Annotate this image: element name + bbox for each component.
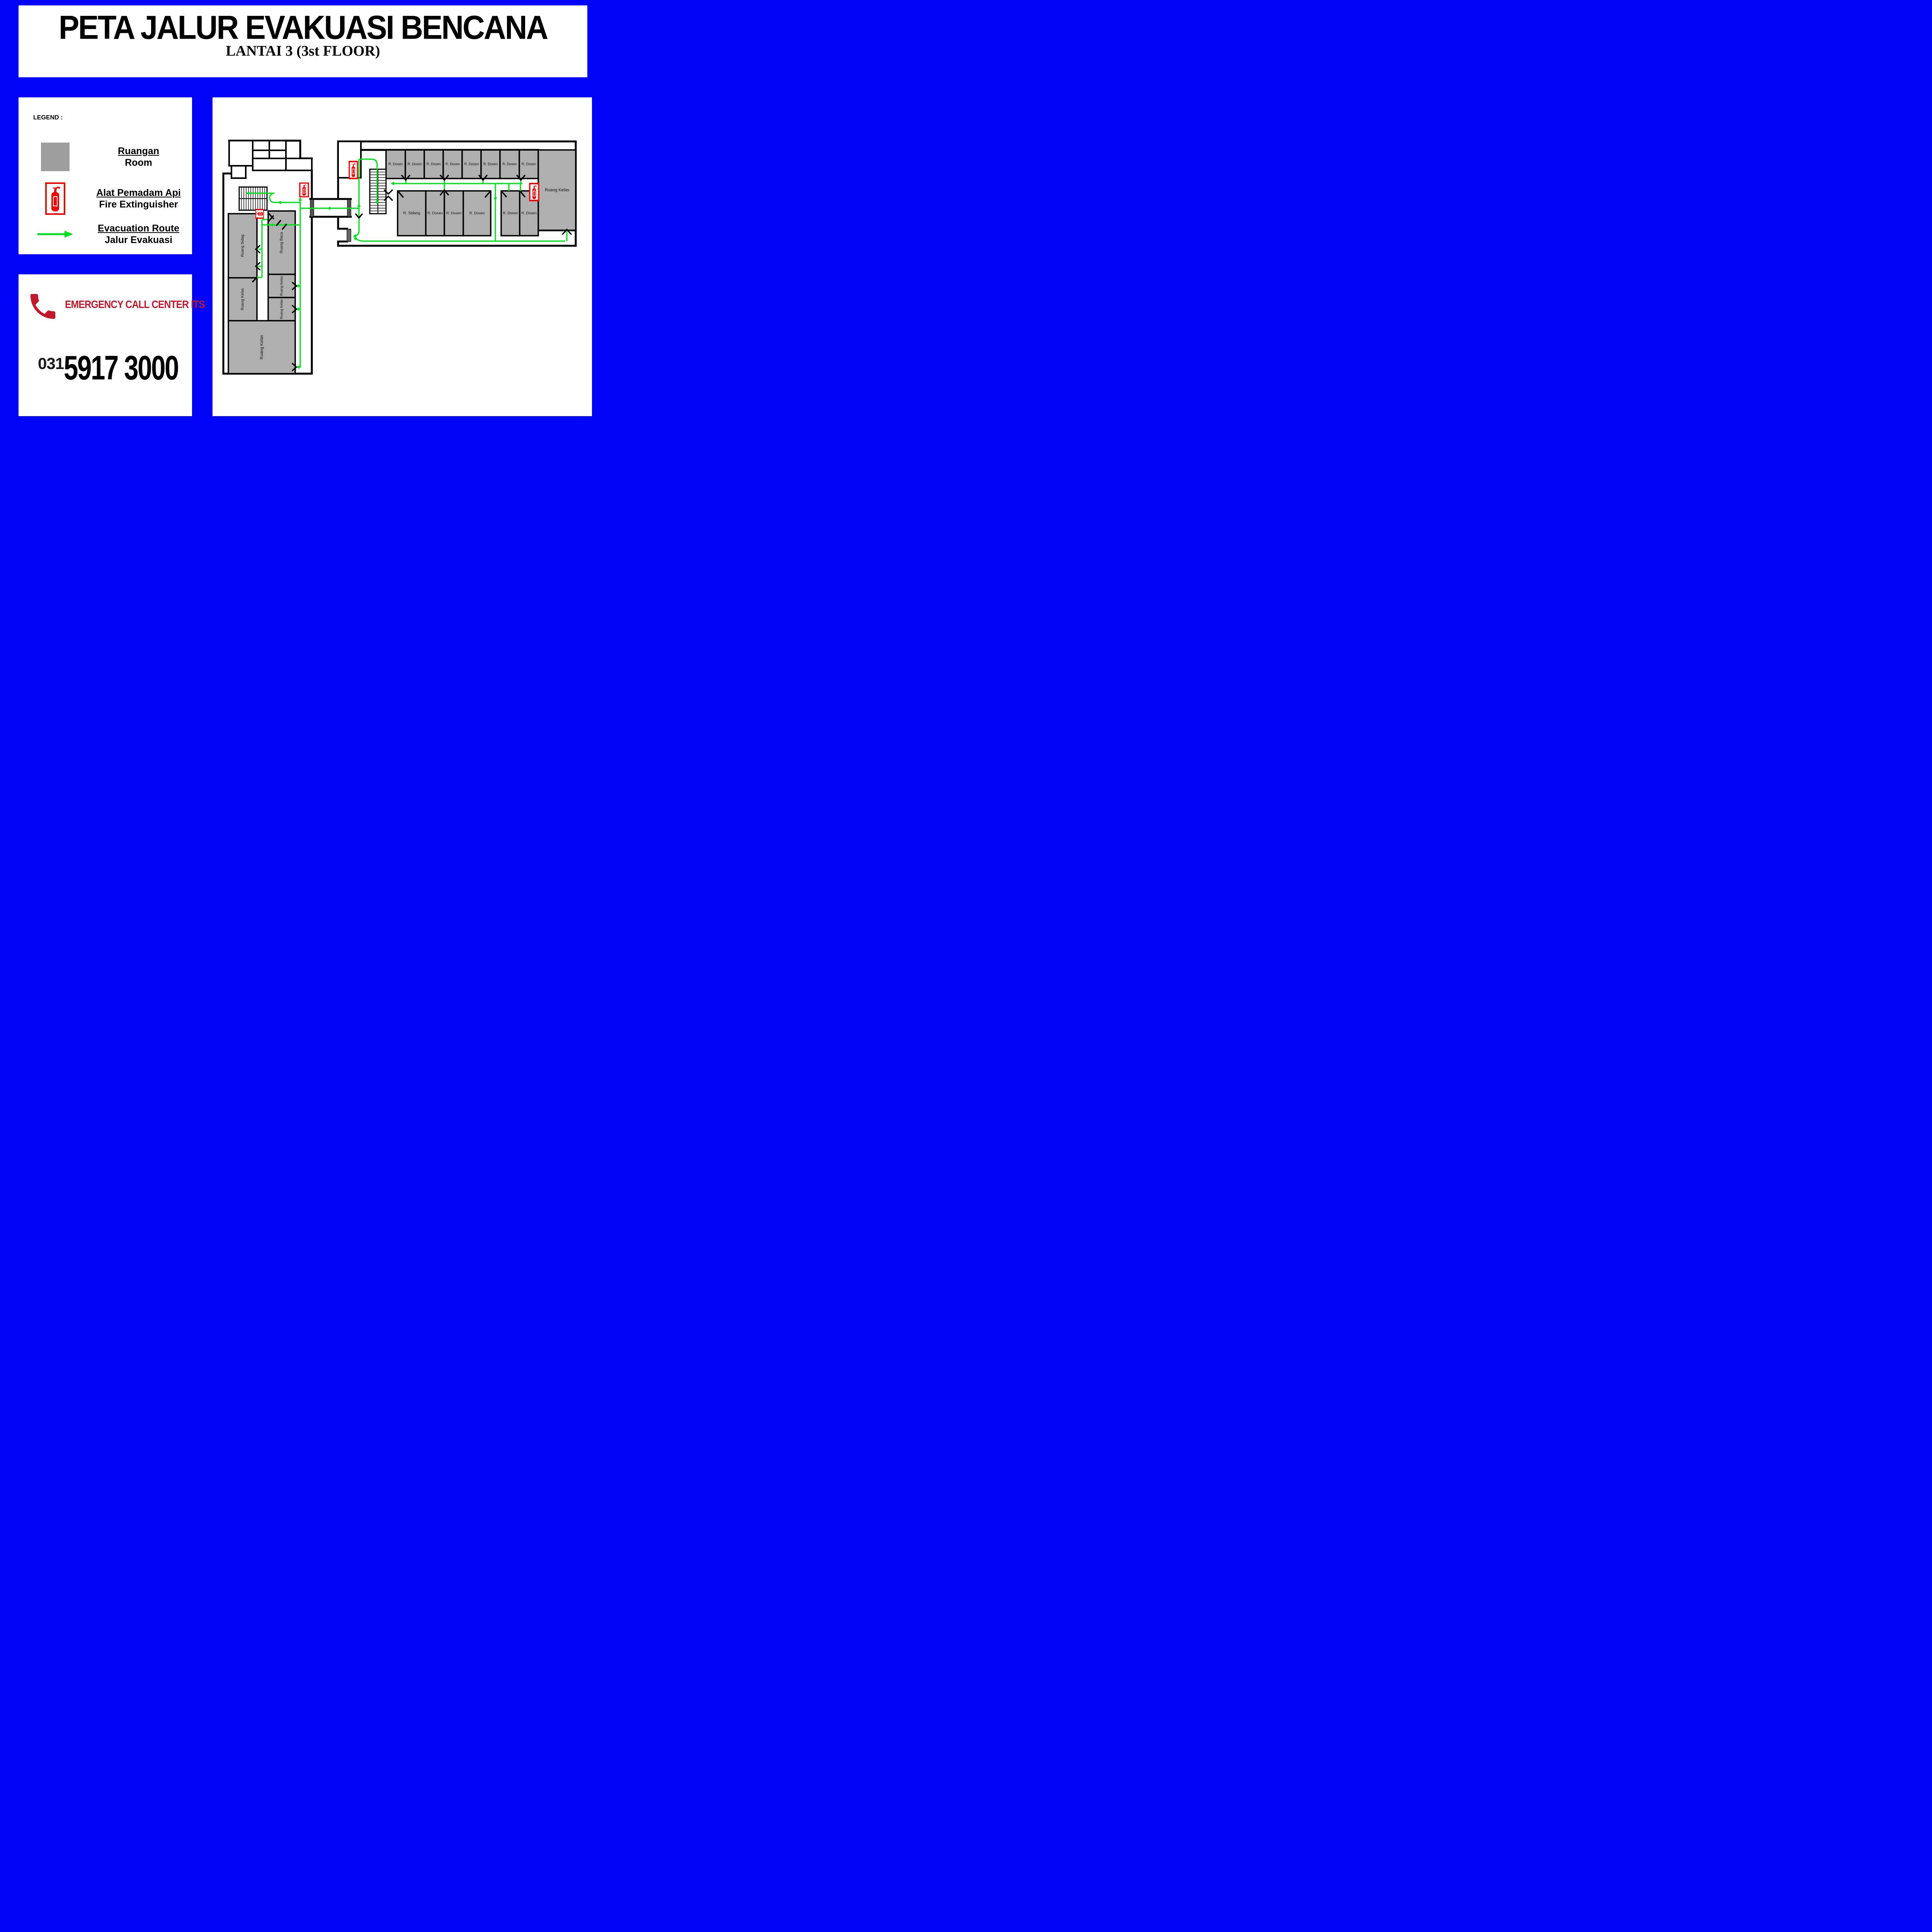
legend-room-label-id: Ruangan	[118, 146, 159, 156]
evacuation-route	[355, 238, 565, 241]
fire-extinguisher-icon	[300, 183, 308, 197]
room-label: R. Dosen	[446, 162, 460, 166]
room-label: R. Dosen	[446, 211, 462, 216]
utility-room	[286, 158, 312, 170]
phone-prefix: 031	[38, 354, 64, 372]
room-label: R. Dosen	[483, 162, 498, 166]
room-label: R. Dosen	[388, 162, 403, 166]
emergency-title: EMERGENCY CALL CENTER ITS	[65, 298, 205, 311]
room-label: R. Dosen	[522, 162, 536, 166]
room-label: Ruang Sidag	[241, 235, 245, 257]
room-label: R. Dosen	[427, 211, 443, 216]
legend-heading: LEGEND :	[33, 114, 63, 121]
room-label: R. Dosen	[469, 211, 485, 216]
fire-extinguisher-icon	[256, 209, 264, 218]
fire-extinguisher-icon	[530, 184, 539, 201]
phone-icon	[26, 290, 60, 323]
utility-room	[269, 150, 286, 158]
legend-route-label-id: Jalur Evakuasi	[105, 235, 172, 245]
evacuation-map-poster: PETA JALUR EVAKUASI BENCANA LANTAI 3 (3s…	[0, 0, 606, 434]
legend-panel: LEGEND : Ruangan Room	[19, 97, 192, 254]
utility-room	[253, 150, 269, 158]
legend-room-label-en: Room	[125, 157, 152, 168]
utility-room	[231, 166, 246, 178]
phone-main: 5917 3000	[64, 348, 178, 388]
room-label: R. Dosen	[427, 162, 441, 166]
room-label: R. Dosen	[408, 162, 422, 166]
fire-extinguisher-icon	[349, 162, 357, 179]
fire-extinguisher-icon	[45, 182, 65, 215]
room-swatch-icon	[41, 143, 70, 171]
room-label: R. Dosen	[521, 211, 537, 216]
evacuation-route-arrow-icon	[37, 230, 74, 238]
utility-room	[269, 141, 286, 150]
room-label: Ruang Kelas	[241, 288, 245, 310]
room-label: Ruang Kelas	[259, 335, 264, 359]
legend-extinguisher-label-en: Fire Extinguisher	[99, 199, 178, 210]
page-title: PETA JALUR EVAKUASI BENCANA	[19, 5, 587, 46]
room-label: R. Sidang	[403, 211, 420, 216]
emergency-panel: EMERGENCY CALL CENTER ITS 0315917 3000	[19, 274, 192, 416]
legend-route-label-en: Evacuation Route	[98, 223, 179, 234]
utility-room	[253, 141, 269, 150]
legend-item-route: Evacuation Route Jalur Evakuasi	[19, 222, 192, 247]
floor-plan-drawing: R. DosenR. DosenR. DosenR. DosenR. Dosen…	[213, 97, 592, 416]
room-label: Ruang Baca	[280, 232, 284, 253]
legend-item-extinguisher: Alat Pemadam Api Fire Extinguisher	[19, 179, 192, 218]
room-label: R. Dosen	[503, 211, 518, 216]
header-panel: PETA JALUR EVAKUASI BENCANA LANTAI 3 (3s…	[19, 5, 587, 77]
emergency-phone-number: 0315917 3000	[38, 350, 207, 388]
room-label: R. Dosen	[502, 162, 517, 166]
room-label: R. Dosen	[464, 162, 479, 166]
utility-room	[229, 141, 253, 166]
legend-item-room: Ruangan Room	[19, 139, 192, 175]
legend-extinguisher-label-id: Alat Pemadam Api	[96, 187, 181, 198]
room-label: Ruang Kelas	[545, 188, 569, 192]
room-label: Ruang Kelas	[279, 276, 283, 296]
evacuation-route	[298, 208, 300, 367]
room-label: Ruang Kelas	[279, 299, 283, 319]
floor-plan-panel: R. DosenR. DosenR. DosenR. DosenR. Dosen…	[213, 97, 592, 416]
utility-room	[253, 158, 286, 170]
